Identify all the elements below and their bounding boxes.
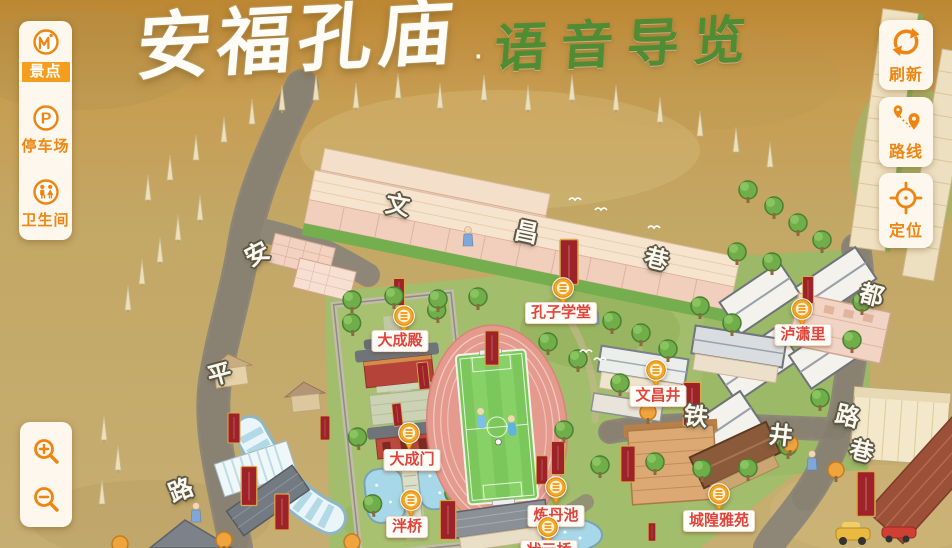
locate-button[interactable]: 定位	[879, 173, 933, 248]
audio-pin-icon	[791, 298, 813, 327]
audio-poi-marker[interactable]	[791, 298, 813, 327]
audio-pin-icon	[400, 489, 422, 518]
route-button[interactable]: 路线	[879, 97, 933, 167]
audio-poi-marker[interactable]	[545, 476, 567, 505]
sidebar-item-scenic-spots[interactable]: 景点	[19, 28, 72, 82]
sidebar-item-label: 停车场	[21, 138, 69, 156]
scenic-spot-icon	[32, 28, 60, 56]
zoom-in-button[interactable]	[30, 435, 62, 467]
poi-label[interactable]: 文昌井	[629, 385, 686, 407]
poi-label[interactable]: 泮桥	[386, 516, 428, 538]
audio-pin-icon	[645, 359, 667, 388]
poi-label[interactable]: 状元桥	[520, 540, 577, 548]
map-illustration	[0, 0, 952, 548]
zoom-controls	[20, 422, 72, 527]
refresh-label: 刷新	[889, 61, 923, 85]
audio-poi-marker[interactable]	[398, 422, 420, 451]
poi-label[interactable]: 孔子学堂	[525, 302, 597, 324]
sidebar-item-label: 卫生间	[21, 212, 69, 230]
audio-pin-icon	[708, 483, 730, 512]
sidebar-item-label: 景点	[22, 62, 70, 82]
refresh-icon	[889, 25, 923, 59]
locate-icon	[889, 181, 923, 215]
left-toolbar: 景点 P 停车场	[19, 21, 72, 240]
audio-poi-marker[interactable]	[645, 359, 667, 388]
sidebar-item-restroom[interactable]: 卫生间	[19, 178, 72, 230]
audio-pin-icon	[545, 476, 567, 505]
audio-poi-marker[interactable]	[400, 489, 422, 518]
poi-label[interactable]: 大成殿	[371, 330, 428, 352]
route-icon	[889, 102, 923, 136]
audio-poi-marker[interactable]	[708, 483, 730, 512]
route-label: 路线	[889, 138, 923, 162]
poi-label[interactable]: 大成门	[383, 449, 440, 471]
zoom-out-icon	[30, 483, 62, 515]
poi-label[interactable]: 城隍雅苑	[683, 510, 755, 532]
audio-pin-icon	[398, 422, 420, 451]
poi-label[interactable]: 泸潇里	[774, 324, 831, 346]
zoom-out-button[interactable]	[30, 483, 62, 515]
parking-icon: P	[32, 104, 60, 132]
locate-label: 定位	[889, 217, 923, 241]
restroom-icon	[32, 178, 60, 206]
zoom-in-icon	[30, 435, 62, 467]
map-canvas[interactable]: 文 昌 巷 安 平 路 都 路 巷 铁 井 大成殿	[0, 0, 952, 548]
sidebar-item-parking[interactable]: P 停车场	[19, 104, 72, 156]
svg-text:P: P	[40, 111, 51, 128]
refresh-button[interactable]: 刷新	[879, 20, 933, 90]
